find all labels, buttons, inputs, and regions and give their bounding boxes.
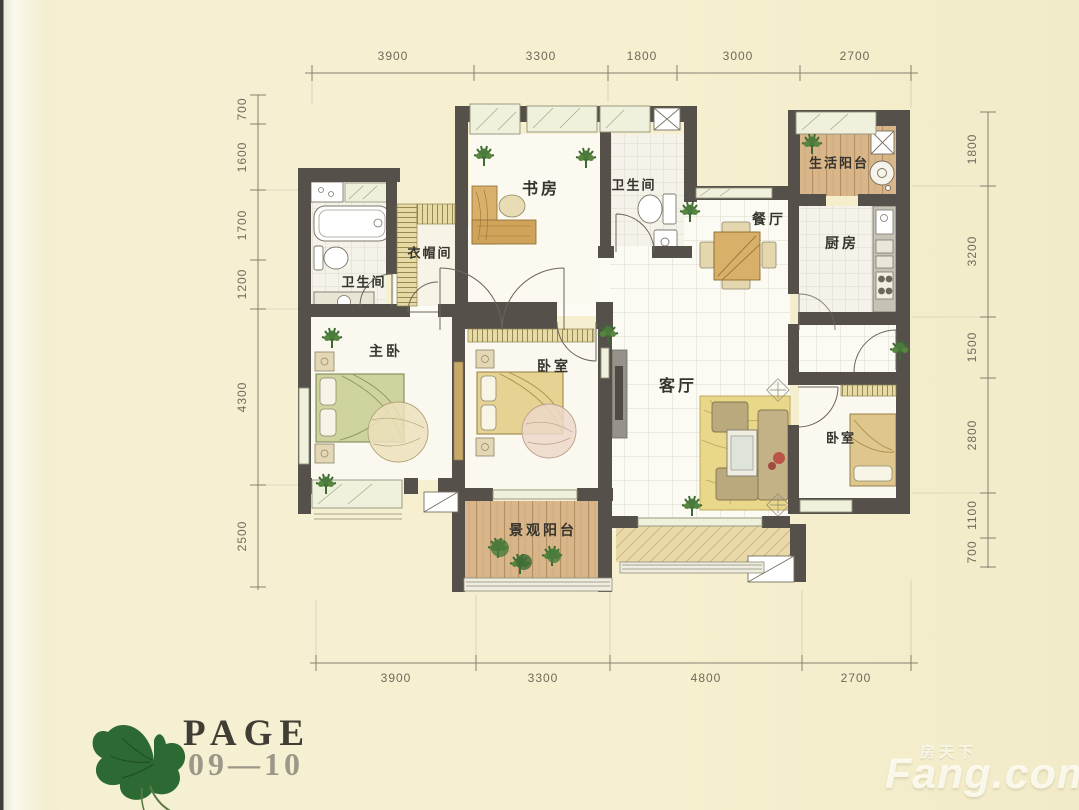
- dim-right-6: 700: [965, 540, 979, 563]
- room-label-study: 书房: [522, 175, 560, 199]
- dim-top-4: 3000: [723, 49, 754, 63]
- dim-top-3: 1800: [627, 49, 658, 63]
- room-label-living-room: 客厅: [659, 372, 697, 396]
- room-label-bath-left: 卫生间: [341, 272, 386, 291]
- kitchen-counter: [873, 206, 896, 312]
- ginkgo-leaf: [93, 725, 186, 810]
- right-bed: [850, 414, 896, 486]
- scanned-floorplan-page: 书房 卫生间 生活阳台 餐厅 厨房 衣帽间 卫生间 主卧 卧室 客厅 卧室 景观…: [0, 0, 1079, 810]
- dim-left-3: 1700: [235, 210, 249, 241]
- dim-right-5: 1100: [965, 500, 979, 530]
- dim-top-5: 2700: [840, 49, 871, 63]
- dim-right-1: 1800: [965, 134, 979, 165]
- room-label-bedroom-middle: 卧室: [537, 356, 571, 376]
- room-label-dining: 餐厅: [752, 209, 786, 229]
- room-label-cloakroom: 衣帽间: [407, 243, 452, 262]
- dim-left-2: 1600: [235, 142, 249, 173]
- dim-top-2: 3300: [526, 49, 557, 63]
- room-label-kitchen: 厨房: [825, 233, 859, 253]
- dim-bottom-2: 3300: [528, 671, 559, 685]
- dim-bottom-1: 3900: [381, 671, 412, 685]
- dim-top-1: 3900: [378, 49, 409, 63]
- dim-left-1: 700: [235, 97, 249, 120]
- dim-right-3: 1500: [965, 332, 979, 363]
- dim-right-2: 3200: [965, 236, 979, 267]
- dim-bottom-4: 2700: [841, 671, 872, 685]
- room-label-bath-top: 卫生间: [611, 175, 656, 194]
- footer-page-range: 09—10: [188, 746, 304, 783]
- room-label-master-bedroom: 主卧: [369, 341, 403, 361]
- dim-left-6: 2500: [235, 521, 249, 552]
- dim-bottom-3: 4800: [691, 671, 722, 685]
- dim-left-5: 4300: [235, 382, 249, 413]
- floor-plan-drawing: [0, 0, 1079, 810]
- room-label-bedroom-right: 卧室: [826, 428, 856, 447]
- dim-left-4: 1200: [235, 269, 249, 300]
- dim-right-4: 2800: [965, 420, 979, 451]
- room-label-service-balcony: 生活阳台: [809, 153, 869, 172]
- room-label-view-balcony: 景观阳台: [509, 520, 577, 540]
